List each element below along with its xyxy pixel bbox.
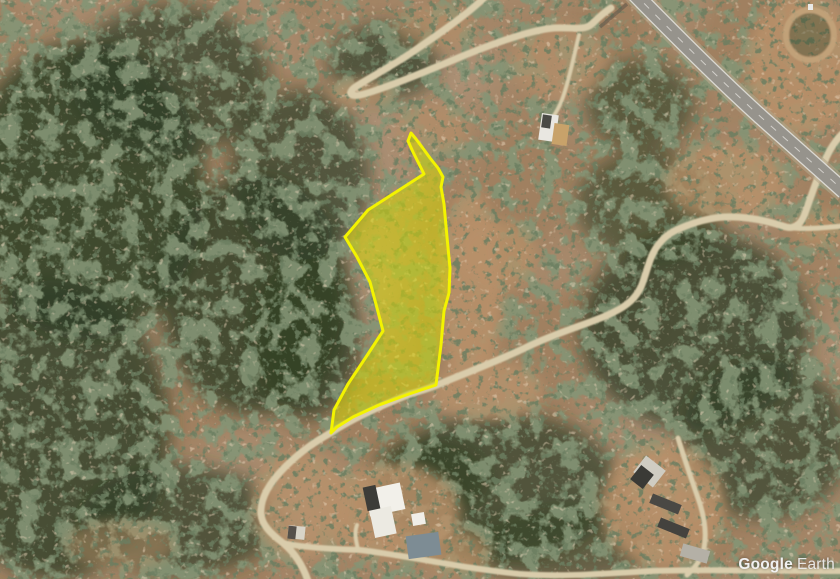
east-branch-road (786, 226, 840, 229)
watermark-brand: Google (738, 556, 793, 573)
watermark-product: Earth (797, 556, 835, 573)
satellite-map[interactable] (0, 0, 840, 579)
villa-shed (411, 512, 426, 526)
google-earth-watermark: GoogleEarth (738, 556, 835, 574)
villa-pool (406, 532, 442, 559)
top-house-tan (552, 123, 570, 146)
roadside-shed-roof (287, 526, 296, 540)
top-house-dark-roof (541, 114, 552, 128)
google-earth-viewport: GoogleEarth (0, 0, 840, 579)
roundabout-circle (786, 10, 834, 60)
highway-sign (808, 4, 813, 10)
villa-spur (355, 525, 358, 549)
